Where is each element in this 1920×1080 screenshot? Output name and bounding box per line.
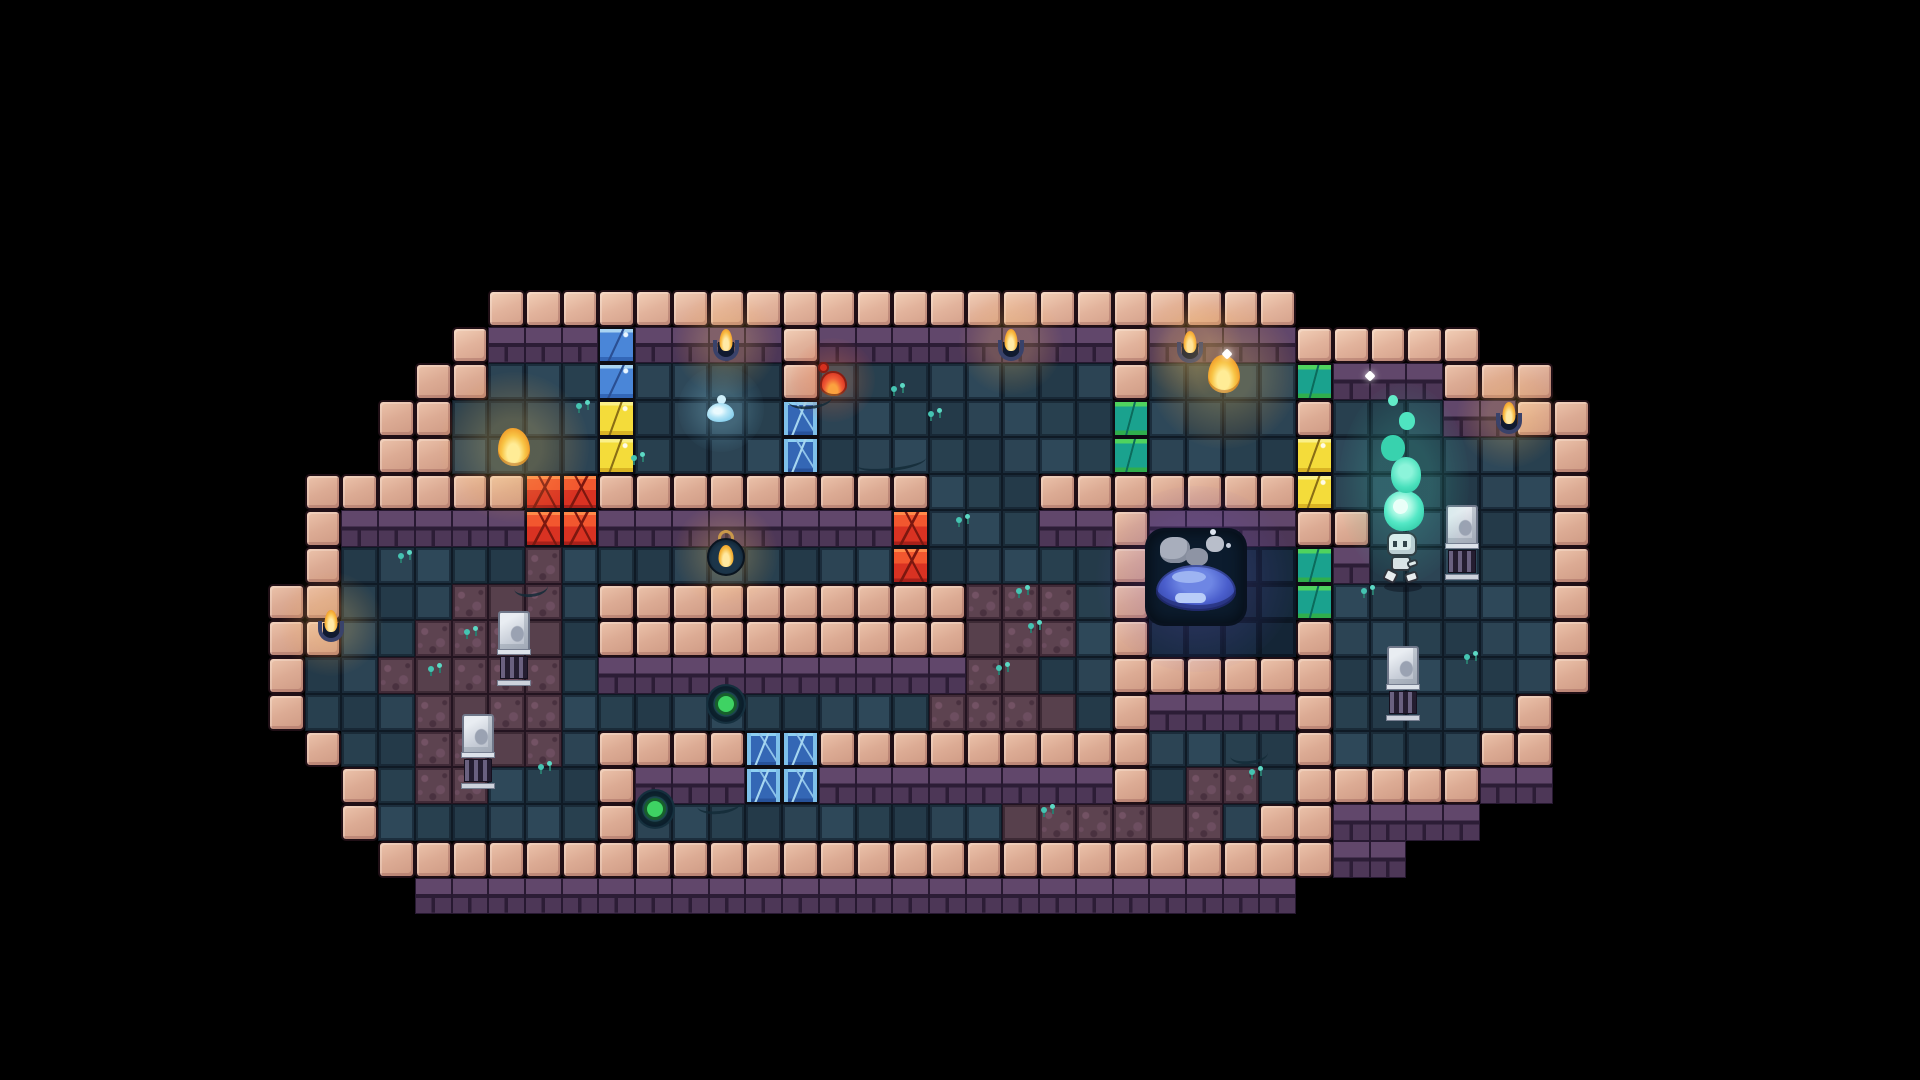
moss-floor-tile xyxy=(1002,694,1039,731)
wall-brick-tile xyxy=(1296,510,1333,547)
wall-face-tile xyxy=(452,878,488,914)
floor-tile xyxy=(1516,547,1553,584)
floor-tile xyxy=(1333,731,1370,767)
floor-tile xyxy=(1443,731,1480,767)
floor-tile xyxy=(415,547,452,584)
water-droplet-pickup[interactable] xyxy=(707,395,735,423)
wall-brick-tile xyxy=(1223,474,1259,510)
floor-button[interactable] xyxy=(635,789,675,829)
wall-brick-tile xyxy=(1553,474,1590,510)
door-blue-tile[interactable] xyxy=(598,363,635,400)
wall-face-tile xyxy=(1443,804,1480,841)
floor-tile xyxy=(819,437,856,474)
wall-brick-tile xyxy=(1480,731,1516,767)
wall-brick-tile xyxy=(856,841,892,878)
moss-sprout xyxy=(575,400,591,413)
wall-brick-tile xyxy=(1259,290,1296,327)
wall-face-tile xyxy=(1443,400,1480,437)
wall-brick-tile xyxy=(1406,767,1443,804)
wall-brick-tile xyxy=(1553,437,1590,474)
wall-brick-tile xyxy=(929,731,966,767)
wall-brick-tile xyxy=(819,584,856,620)
wall-brick-tile xyxy=(635,290,672,327)
wall-face-tile xyxy=(1223,878,1259,914)
floor-tile xyxy=(856,804,892,841)
wall-brick-tile xyxy=(1516,694,1553,731)
floor-tile xyxy=(929,437,966,474)
floor-button[interactable] xyxy=(706,684,746,724)
wall-brick-tile xyxy=(1553,510,1590,547)
floor-tile xyxy=(341,620,378,657)
door-ice-tile[interactable] xyxy=(745,767,782,804)
floor-tile xyxy=(1333,474,1370,510)
wall-face-tile xyxy=(452,510,488,547)
wall-brick-tile xyxy=(856,474,892,510)
floor-tile xyxy=(1223,400,1259,437)
wall-torch xyxy=(997,329,1025,369)
wall-brick-tile xyxy=(635,474,672,510)
wall-face-tile xyxy=(1223,694,1259,731)
wall-brick-tile xyxy=(488,290,525,327)
player-character[interactable] xyxy=(1377,530,1429,594)
floor-tile xyxy=(562,437,598,474)
wall-face-tile xyxy=(819,510,856,547)
moss-floor-tile xyxy=(1076,804,1113,841)
wall-brick-tile xyxy=(1333,327,1370,363)
wall-brick-tile xyxy=(562,841,598,878)
wall-brick-tile xyxy=(709,474,745,510)
floor-tile xyxy=(1443,437,1480,474)
floor-tile xyxy=(1223,437,1259,474)
wall-brick-tile xyxy=(1296,620,1333,657)
wall-brick-tile xyxy=(929,290,966,327)
wall-face-tile xyxy=(856,510,892,547)
floor-tile xyxy=(1076,584,1113,620)
wall-face-tile xyxy=(341,510,378,547)
wall-brick-tile xyxy=(305,547,341,584)
wall-face-tile xyxy=(856,657,892,694)
wall-brick-tile xyxy=(1186,657,1223,694)
door-ice-tile[interactable] xyxy=(745,731,782,767)
floor-tile xyxy=(1039,437,1076,474)
wall-brick-tile xyxy=(1370,767,1406,804)
wall-brick-tile xyxy=(819,290,856,327)
floor-tile xyxy=(745,400,782,437)
wall-face-tile xyxy=(1002,878,1039,914)
wall-face-tile xyxy=(745,510,782,547)
floor-tile xyxy=(1480,620,1516,657)
floor-tile xyxy=(341,694,378,731)
floor-tile xyxy=(966,474,1002,510)
floor-tile xyxy=(1076,437,1113,474)
wall-face-tile xyxy=(929,327,966,363)
floor-tile xyxy=(1076,363,1113,400)
wall-face-tile xyxy=(672,327,709,363)
floor-tile xyxy=(415,804,452,841)
wall-face-tile xyxy=(598,510,635,547)
floor-tile xyxy=(525,804,562,841)
alcove-floor-tile xyxy=(1259,584,1296,620)
wall-brick-tile xyxy=(268,620,305,657)
wall-brick-tile xyxy=(966,841,1002,878)
wall-brick-tile xyxy=(709,584,745,620)
wall-face-tile xyxy=(415,878,452,914)
wall-brick-tile xyxy=(929,841,966,878)
wall-brick-tile xyxy=(709,620,745,657)
floor-tile xyxy=(1480,694,1516,731)
wall-face-tile xyxy=(819,657,856,694)
wall-brick-tile xyxy=(1406,327,1443,363)
wall-brick-tile xyxy=(1296,400,1333,437)
floor-tile xyxy=(1259,767,1296,804)
floor-tile xyxy=(1443,584,1480,620)
wall-face-tile xyxy=(892,767,929,804)
wall-brick-tile xyxy=(856,731,892,767)
wall-face-tile xyxy=(1516,767,1553,804)
wall-face-tile xyxy=(488,878,525,914)
wall-brick-tile xyxy=(341,804,378,841)
door-green-tile[interactable] xyxy=(1113,437,1149,474)
floor-tile xyxy=(672,547,709,584)
wall-brick-tile xyxy=(598,767,635,804)
floor-tile xyxy=(1259,400,1296,437)
floor-tile xyxy=(1516,474,1553,510)
floor-tile xyxy=(1516,620,1553,657)
moss-floor-tile xyxy=(1186,767,1223,804)
wall-brick-tile xyxy=(1113,620,1149,657)
door-red-tile[interactable] xyxy=(892,510,929,547)
floor-tile xyxy=(1076,400,1113,437)
wall-brick-tile xyxy=(745,620,782,657)
wall-face-tile xyxy=(782,878,819,914)
wall-face-tile xyxy=(1039,767,1076,804)
floor-tile xyxy=(1333,620,1370,657)
door-green-tile[interactable] xyxy=(1296,547,1333,584)
wall-face-tile xyxy=(1113,878,1149,914)
wall-brick-tile xyxy=(1113,290,1149,327)
floor-tile xyxy=(488,363,525,400)
wall-brick-tile xyxy=(1443,767,1480,804)
door-blue-tile[interactable] xyxy=(598,327,635,363)
wall-torch xyxy=(1176,331,1204,371)
door-ice-tile[interactable] xyxy=(782,437,819,474)
door-yellow-tile[interactable] xyxy=(1296,437,1333,474)
moss-floor-tile xyxy=(1002,804,1039,841)
door-green-tile[interactable] xyxy=(1296,363,1333,400)
wall-brick-tile xyxy=(1296,327,1333,363)
floor-tile xyxy=(378,804,415,841)
moss-floor-tile xyxy=(415,767,452,804)
floor-tile xyxy=(1002,400,1039,437)
wall-grate xyxy=(497,611,531,687)
wall-brick-tile xyxy=(488,474,525,510)
wall-face-tile xyxy=(745,327,782,363)
wall-brick-tile xyxy=(1296,731,1333,767)
door-red-tile[interactable] xyxy=(525,510,562,547)
wall-face-tile xyxy=(745,878,782,914)
gold-flame-pickup[interactable] xyxy=(496,426,532,468)
wall-brick-tile xyxy=(1296,767,1333,804)
wall-grate xyxy=(1386,646,1420,722)
floor-tile xyxy=(819,400,856,437)
wall-brick-tile xyxy=(819,841,856,878)
wall-face-tile xyxy=(1186,694,1223,731)
wall-brick-tile xyxy=(1149,290,1186,327)
wall-face-tile xyxy=(672,878,709,914)
door-green-tile[interactable] xyxy=(1296,584,1333,620)
floor-tile xyxy=(856,694,892,731)
door-red-tile[interactable] xyxy=(562,474,598,510)
wall-brick-tile xyxy=(1113,547,1149,584)
moss-sprout xyxy=(397,550,413,563)
floor-tile xyxy=(745,547,782,584)
wall-face-tile xyxy=(819,767,856,804)
wall-face-tile xyxy=(1149,694,1186,731)
floor-tile xyxy=(892,804,929,841)
floor-tile xyxy=(966,804,1002,841)
floor-tile xyxy=(1516,510,1553,547)
floor-tile xyxy=(452,437,488,474)
floor-tile xyxy=(1149,767,1186,804)
wall-brick-tile xyxy=(598,841,635,878)
floor-tile xyxy=(1002,474,1039,510)
moss-sprout xyxy=(927,408,943,421)
wall-brick-tile xyxy=(745,474,782,510)
door-red-tile[interactable] xyxy=(562,510,598,547)
wall-brick-tile xyxy=(415,474,452,510)
moss-sprout xyxy=(537,761,553,774)
floor-tile xyxy=(1186,731,1223,767)
door-red-tile[interactable] xyxy=(892,547,929,584)
floor-tile xyxy=(856,400,892,437)
wall-brick-tile xyxy=(709,731,745,767)
door-yellow-tile[interactable] xyxy=(1296,474,1333,510)
wall-brick-tile xyxy=(672,290,709,327)
wall-brick-tile xyxy=(415,400,452,437)
wall-brick-tile xyxy=(1259,841,1296,878)
floor-tile xyxy=(856,547,892,584)
floor-tile xyxy=(598,694,635,731)
floor-tile xyxy=(966,437,1002,474)
wall-brick-tile xyxy=(1443,363,1480,400)
floor-tile xyxy=(1223,804,1259,841)
wall-brick-tile xyxy=(378,474,415,510)
wall-face-tile xyxy=(562,878,598,914)
wall-face-tile xyxy=(1333,804,1370,841)
floor-tile xyxy=(1076,657,1113,694)
wall-face-tile xyxy=(635,878,672,914)
floor-tile xyxy=(1443,694,1480,731)
floor-tile xyxy=(1480,547,1516,584)
wall-brick-tile xyxy=(745,290,782,327)
wall-face-tile xyxy=(1259,878,1296,914)
wall-face-tile xyxy=(929,767,966,804)
wall-brick-tile xyxy=(1113,510,1149,547)
wall-face-tile xyxy=(1002,767,1039,804)
floor-tile xyxy=(341,657,378,694)
wall-grate xyxy=(1445,505,1479,581)
wall-brick-tile xyxy=(672,474,709,510)
floor-tile xyxy=(635,547,672,584)
wall-brick-tile xyxy=(1113,657,1149,694)
floor-tile xyxy=(452,400,488,437)
lantern-pickup[interactable] xyxy=(706,530,746,578)
wall-brick-tile xyxy=(892,584,929,620)
wall-brick-tile xyxy=(1039,290,1076,327)
floor-tile xyxy=(782,547,819,584)
wall-brick-tile xyxy=(635,731,672,767)
moss-sprout xyxy=(955,514,971,527)
wall-brick-tile xyxy=(415,363,452,400)
wall-brick-tile xyxy=(1113,694,1149,731)
wall-face-tile xyxy=(1076,767,1113,804)
wall-brick-tile xyxy=(856,290,892,327)
wall-face-tile xyxy=(1333,841,1370,878)
wall-brick-tile xyxy=(892,290,929,327)
floor-tile xyxy=(378,731,415,767)
door-ice-tile[interactable] xyxy=(782,731,819,767)
wall-brick-tile xyxy=(1149,657,1186,694)
wall-face-tile xyxy=(966,878,1002,914)
floor-tile xyxy=(1480,437,1516,474)
floor-tile xyxy=(378,767,415,804)
wall-brick-tile xyxy=(452,363,488,400)
moss-floor-tile xyxy=(966,620,1002,657)
floor-tile xyxy=(305,657,341,694)
floor-tile xyxy=(1516,657,1553,694)
wall-brick-tile xyxy=(819,731,856,767)
wall-face-tile xyxy=(1039,878,1076,914)
wall-face-tile xyxy=(598,878,635,914)
wall-face-tile xyxy=(1333,547,1370,584)
wall-face-tile xyxy=(1370,841,1406,878)
floor-tile xyxy=(966,400,1002,437)
floor-tile xyxy=(598,547,635,584)
wall-brick-tile xyxy=(1186,290,1223,327)
wall-face-tile xyxy=(1259,327,1296,363)
wall-brick-tile xyxy=(672,620,709,657)
moss-sprout xyxy=(427,663,443,676)
wall-brick-tile xyxy=(1553,584,1590,620)
floor-tile xyxy=(1002,437,1039,474)
wall-face-tile xyxy=(1076,878,1113,914)
wall-face-tile xyxy=(1259,510,1296,547)
floor-tile xyxy=(819,547,856,584)
wall-face-tile xyxy=(1259,694,1296,731)
floor-tile xyxy=(635,363,672,400)
floor-tile xyxy=(1406,731,1443,767)
floor-tile xyxy=(672,694,709,731)
floor-tile xyxy=(305,694,341,731)
wall-brick-tile xyxy=(892,841,929,878)
floor-tile xyxy=(562,804,598,841)
floor-tile xyxy=(1516,584,1553,620)
gold-flame-pickup[interactable] xyxy=(1206,353,1242,395)
floor-tile xyxy=(1002,510,1039,547)
wall-brick-tile xyxy=(635,584,672,620)
moss-floor-tile xyxy=(1149,804,1186,841)
wall-brick-tile xyxy=(819,474,856,510)
floor-tile xyxy=(452,804,488,841)
door-green-tile[interactable] xyxy=(1113,400,1149,437)
wall-grate xyxy=(461,714,495,790)
door-red-tile[interactable] xyxy=(525,474,562,510)
wall-brick-tile xyxy=(672,841,709,878)
wall-brick-tile xyxy=(1259,804,1296,841)
floor-tile xyxy=(1333,400,1370,437)
wall-face-tile xyxy=(1149,878,1186,914)
wall-face-tile xyxy=(1076,327,1113,363)
wall-brick-tile xyxy=(341,474,378,510)
wall-brick-tile xyxy=(672,584,709,620)
floor-tile xyxy=(1480,657,1516,694)
door-yellow-tile[interactable] xyxy=(598,400,635,437)
wall-torch xyxy=(712,329,740,369)
floor-tile xyxy=(635,400,672,437)
wall-brick-tile xyxy=(782,290,819,327)
wall-brick-tile xyxy=(378,841,415,878)
wall-face-tile xyxy=(525,878,562,914)
wall-brick-tile xyxy=(1113,731,1149,767)
wall-brick-tile xyxy=(378,437,415,474)
wall-brick-tile xyxy=(1516,363,1553,400)
floor-tile xyxy=(452,547,488,584)
wall-brick-tile xyxy=(562,290,598,327)
floor-tile xyxy=(1259,363,1296,400)
moss-sprout xyxy=(630,452,646,465)
floor-tile xyxy=(562,620,598,657)
wall-torch xyxy=(1495,402,1523,442)
wall-brick-tile xyxy=(1113,327,1149,363)
wall-face-tile xyxy=(415,510,452,547)
floor-tile xyxy=(378,694,415,731)
wall-brick-tile xyxy=(1370,327,1406,363)
wall-brick-tile xyxy=(1296,694,1333,731)
wall-brick-tile xyxy=(415,437,452,474)
slime-pool[interactable] xyxy=(1146,529,1246,629)
floor-tile xyxy=(1333,657,1370,694)
wall-brick-tile xyxy=(1259,474,1296,510)
floor-tile xyxy=(929,363,966,400)
wall-brick-tile xyxy=(1076,731,1113,767)
floor-tile xyxy=(1039,400,1076,437)
wall-brick-tile xyxy=(892,474,929,510)
floor-tile xyxy=(709,437,745,474)
moss-sprout xyxy=(1027,620,1043,633)
moss-floor-tile xyxy=(525,694,562,731)
wall-brick-tile xyxy=(268,584,305,620)
wall-brick-tile xyxy=(1113,841,1149,878)
wall-face-tile xyxy=(635,327,672,363)
wall-brick-tile xyxy=(1002,731,1039,767)
moss-floor-tile xyxy=(1039,584,1076,620)
floor-tile xyxy=(1149,731,1186,767)
moss-sprout xyxy=(1040,804,1056,817)
wall-brick-tile xyxy=(929,584,966,620)
floor-tile xyxy=(856,363,892,400)
wall-face-tile xyxy=(562,327,598,363)
wall-brick-tile xyxy=(452,841,488,878)
moss-floor-tile xyxy=(1186,804,1223,841)
floor-tile xyxy=(1259,437,1296,474)
wall-brick-tile xyxy=(1076,474,1113,510)
wall-face-tile xyxy=(635,657,672,694)
floor-tile xyxy=(488,804,525,841)
wall-face-tile xyxy=(1039,327,1076,363)
wall-brick-tile xyxy=(268,694,305,731)
floor-tile xyxy=(1149,437,1186,474)
door-ice-tile[interactable] xyxy=(782,767,819,804)
